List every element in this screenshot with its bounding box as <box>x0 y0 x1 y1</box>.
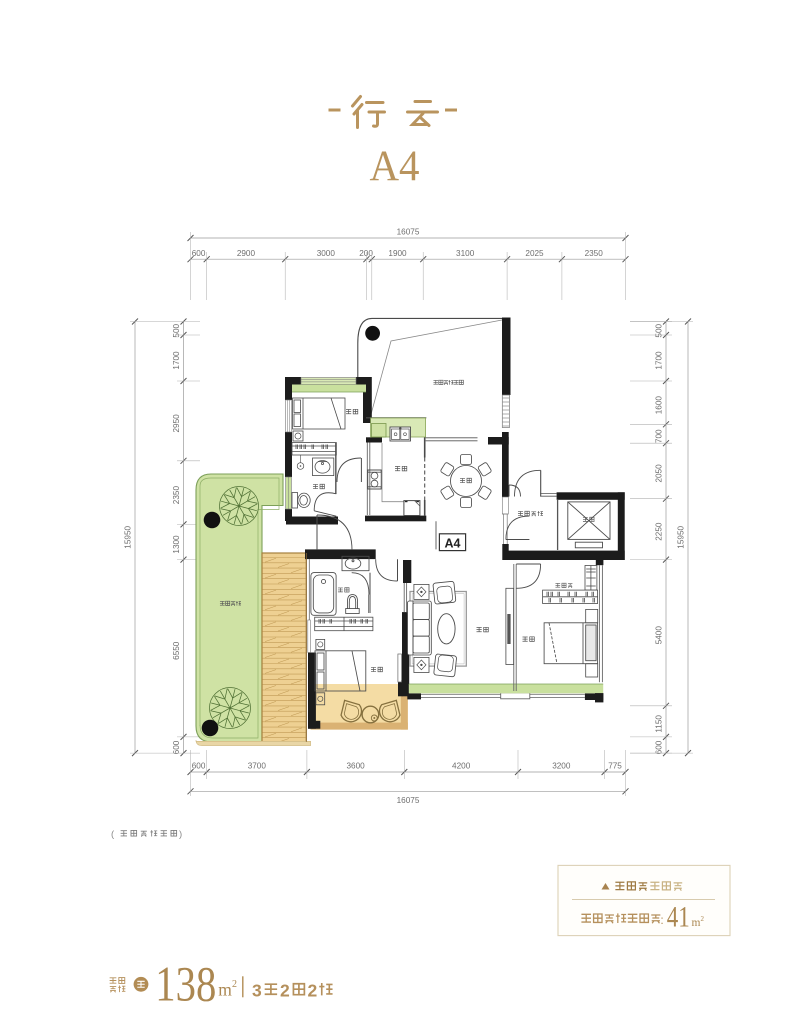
svg-text:1300: 1300 <box>172 535 181 554</box>
svg-text:2050: 2050 <box>655 464 664 483</box>
svg-text:2: 2 <box>232 979 237 990</box>
svg-text:41: 41 <box>667 901 690 934</box>
svg-text:3100: 3100 <box>456 249 475 258</box>
svg-text:4200: 4200 <box>452 762 471 771</box>
svg-text:15950: 15950 <box>124 525 133 548</box>
svg-text:2250: 2250 <box>655 522 664 541</box>
svg-text:600: 600 <box>192 762 206 771</box>
svg-text:1900: 1900 <box>388 249 407 258</box>
svg-text:2: 2 <box>701 915 705 923</box>
svg-text:775: 775 <box>608 762 622 771</box>
svg-text:2: 2 <box>308 980 318 1000</box>
svg-text:6550: 6550 <box>172 641 181 660</box>
svg-text:1700: 1700 <box>172 351 181 370</box>
svg-text:1600: 1600 <box>655 396 664 415</box>
svg-text:2025: 2025 <box>525 249 544 258</box>
svg-text:2900: 2900 <box>237 249 256 258</box>
svg-text:m: m <box>218 980 232 1000</box>
svg-text:600: 600 <box>655 740 664 754</box>
svg-text:3000: 3000 <box>317 249 336 258</box>
svg-text:3700: 3700 <box>248 762 267 771</box>
svg-text:1700: 1700 <box>655 351 664 370</box>
svg-text:A4: A4 <box>370 143 420 190</box>
svg-text:3200: 3200 <box>552 762 571 771</box>
svg-text:): ) <box>179 829 182 840</box>
svg-text:2950: 2950 <box>172 414 181 433</box>
svg-text:3: 3 <box>252 980 262 1000</box>
svg-text:m: m <box>692 917 701 929</box>
svg-text:500: 500 <box>655 323 664 337</box>
svg-text:2: 2 <box>280 980 290 1000</box>
svg-text:2350: 2350 <box>172 486 181 505</box>
svg-text:1150: 1150 <box>655 715 664 733</box>
svg-text:3600: 3600 <box>346 762 365 771</box>
svg-text:16075: 16075 <box>397 796 420 805</box>
svg-text:600: 600 <box>172 740 181 754</box>
svg-text:A4: A4 <box>445 537 461 551</box>
svg-text::: : <box>660 913 663 927</box>
svg-text:2350: 2350 <box>585 249 604 258</box>
svg-text:15950: 15950 <box>677 525 686 548</box>
svg-text:600: 600 <box>192 249 206 258</box>
svg-text:138: 138 <box>155 956 216 1011</box>
svg-text:700: 700 <box>655 429 664 443</box>
svg-text:16075: 16075 <box>397 228 420 237</box>
svg-text:5400: 5400 <box>655 626 664 645</box>
svg-text:500: 500 <box>172 323 181 337</box>
